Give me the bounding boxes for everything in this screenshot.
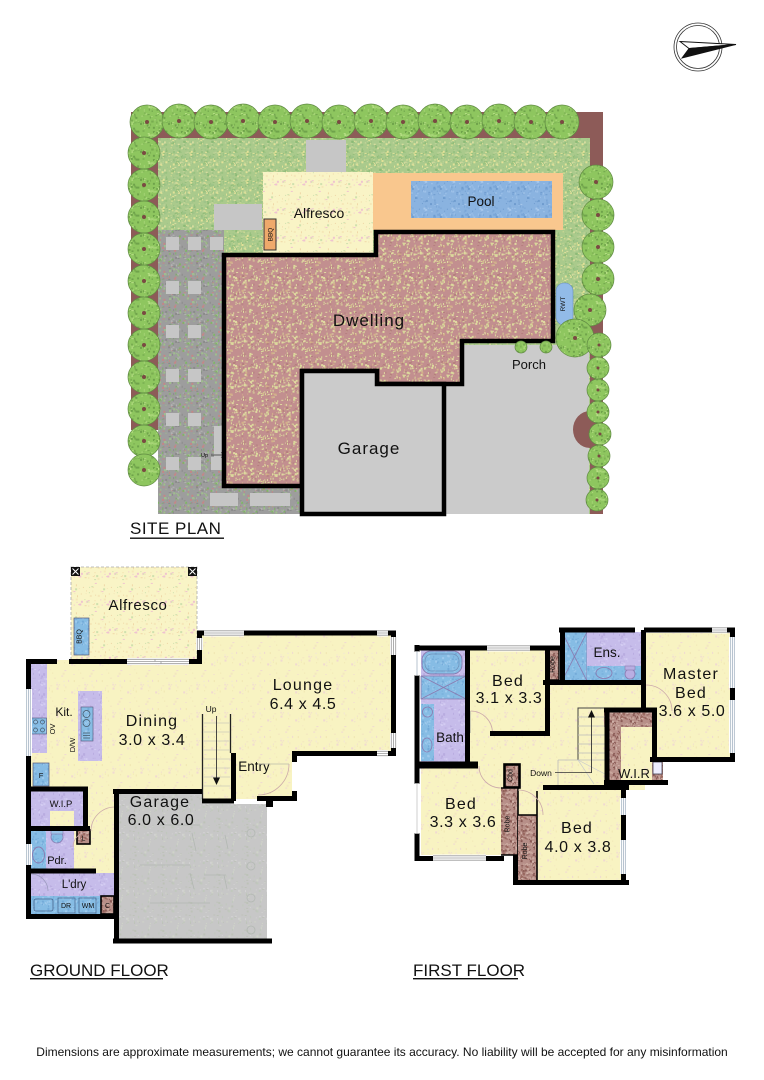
- svg-text:Dwelling: Dwelling: [333, 311, 405, 330]
- svg-text:Robe: Robe: [522, 843, 529, 860]
- svg-text:3.0 x 3.4: 3.0 x 3.4: [119, 732, 186, 749]
- svg-text:6.0 x 6.0: 6.0 x 6.0: [128, 812, 195, 829]
- svg-text:DR: DR: [61, 903, 71, 910]
- svg-text:Up: Up: [206, 704, 217, 714]
- svg-text:Entry: Entry: [238, 759, 270, 774]
- svg-text:Alfresco: Alfresco: [109, 597, 168, 614]
- svg-text:4.0 x 3.8: 4.0 x 3.8: [545, 839, 612, 856]
- svg-text:3.1 x 3.3: 3.1 x 3.3: [476, 690, 543, 707]
- svg-text:Bed: Bed: [445, 796, 477, 813]
- svg-text:RWT: RWT: [560, 297, 567, 312]
- svg-text:Down: Down: [530, 768, 552, 778]
- svg-text:Robe: Robe: [505, 816, 512, 833]
- svg-text:Dining: Dining: [126, 713, 179, 730]
- svg-text:Pdr.: Pdr.: [47, 855, 67, 867]
- svg-text:OV: OV: [48, 724, 57, 735]
- svg-text:Bed: Bed: [492, 673, 524, 690]
- svg-text:Pool: Pool: [467, 194, 494, 209]
- svg-text:Porch: Porch: [512, 357, 546, 372]
- svg-text:Bath: Bath: [436, 730, 464, 745]
- svg-text:L: L: [82, 836, 86, 843]
- svg-text:Garage: Garage: [130, 794, 191, 811]
- svg-text:Robe: Robe: [550, 656, 557, 673]
- svg-text:C: C: [105, 903, 110, 910]
- svg-text:Dimensions are approximate mea: Dimensions are approximate measurements;…: [36, 1045, 727, 1059]
- svg-text:W.I.P: W.I.P: [50, 799, 73, 810]
- svg-text:GROUND FLOOR: GROUND FLOOR: [30, 961, 169, 980]
- svg-text:SITE PLAN: SITE PLAN: [130, 519, 221, 538]
- svg-text:BBQ: BBQ: [268, 228, 275, 242]
- svg-text:BBQ: BBQ: [77, 629, 84, 644]
- svg-text:Ens.: Ens.: [593, 645, 620, 660]
- svg-text:F: F: [39, 771, 44, 780]
- svg-text:Master: Master: [663, 666, 719, 683]
- svg-text:L'dry: L'dry: [62, 879, 87, 891]
- svg-text:D/W: D/W: [68, 737, 77, 753]
- svg-text:Bed: Bed: [675, 685, 707, 702]
- svg-text:Cbd: Cbd: [508, 769, 515, 782]
- svg-text:Garage: Garage: [338, 439, 401, 458]
- svg-text:FIRST FLOOR: FIRST FLOOR: [413, 961, 525, 980]
- svg-text:3.3 x 3.6: 3.3 x 3.6: [430, 814, 497, 831]
- svg-text:3.6 x 5.0: 3.6 x 5.0: [659, 703, 726, 720]
- svg-text:Alfresco: Alfresco: [294, 205, 345, 221]
- svg-text:6.4 x 4.5: 6.4 x 4.5: [270, 696, 337, 713]
- svg-text:WM: WM: [82, 903, 95, 910]
- svg-text:Bed: Bed: [561, 820, 593, 837]
- svg-text:Kit.: Kit.: [55, 705, 72, 719]
- svg-text:Lounge: Lounge: [273, 677, 334, 694]
- svg-text:W.I.R: W.I.R: [618, 766, 650, 781]
- svg-text:Up: Up: [201, 453, 208, 459]
